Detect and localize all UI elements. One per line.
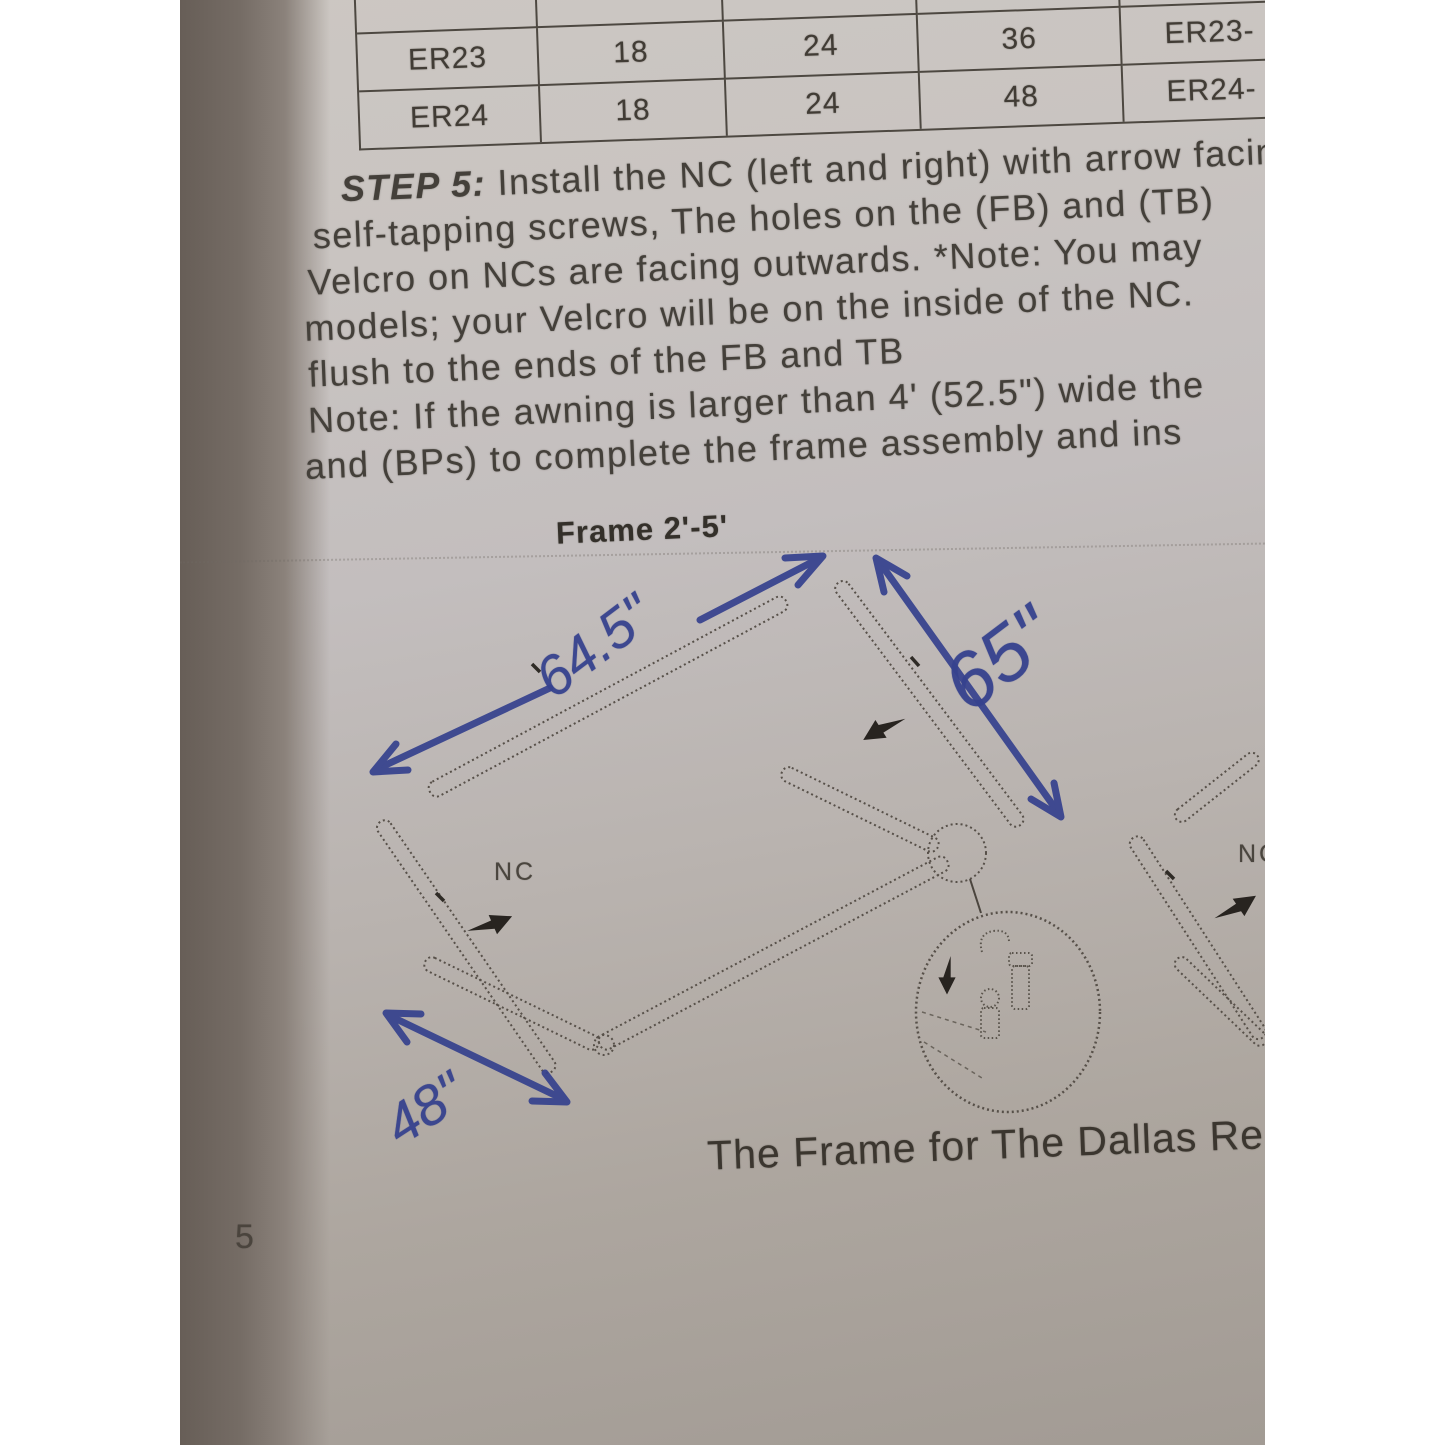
right-diagram-bar (1172, 750, 1262, 825)
arrow-right-nc (1211, 887, 1262, 931)
bolt-detail (981, 931, 1032, 1038)
photo-of-page: ER23 18 24 36 ER23- ER24 18 24 48 ER24- … (180, 0, 1265, 1445)
washer (981, 989, 999, 1007)
bottom-bar (596, 854, 951, 1052)
screw-tick-marks (436, 657, 1174, 901)
table-cell: ER24- (1123, 60, 1265, 122)
magnifier-guide-lines (922, 1012, 986, 1078)
corner-joint-circle (928, 824, 986, 882)
nc-label-left: NC (494, 858, 536, 887)
bolt-hook (981, 931, 1009, 952)
frame-size-label: Frame 2'-5' (555, 508, 729, 551)
scanned-manual-page: ER23 18 24 36 ER23- ER24 18 24 48 ER24- … (0, 0, 1445, 1445)
detail-magnifier-circle (916, 912, 1100, 1112)
table-cell-model: ER23 (357, 28, 540, 92)
arrow-top-bar (858, 706, 909, 749)
table-cell: 36 (918, 8, 1123, 73)
bolt-head (1009, 953, 1032, 966)
table-cell: 48 (920, 66, 1125, 129)
bolt-shaft (1012, 966, 1029, 1009)
table-cell: ER23- (1121, 2, 1265, 66)
step-label: STEP 5: (340, 162, 487, 209)
pen-line-64-5-upper (700, 558, 820, 620)
page-number: 5 (235, 1218, 254, 1257)
nc-leg-left-short (422, 955, 601, 1052)
table-cell: 24 (726, 73, 922, 136)
corner-brace-bar (779, 765, 941, 854)
table-cell: 24 (724, 15, 920, 80)
table-cell: 18 (540, 80, 728, 142)
nc-leg-right-short (1172, 954, 1265, 1048)
table-cell: 18 (538, 22, 726, 86)
table-cell-model: ER24 (359, 86, 542, 148)
direction-arrows (465, 706, 1262, 994)
bolt-shaft-2 (981, 1008, 999, 1038)
pen-line-64-5-lower (375, 688, 550, 770)
magnifier-connector-line (970, 879, 981, 913)
step-instructions: STEP 5: Install the NC (left and right) … (298, 122, 1265, 490)
nc-label-right: NC (1238, 840, 1265, 869)
arrow-left-nc (465, 907, 516, 945)
arrow-magnifier-down (938, 956, 955, 995)
